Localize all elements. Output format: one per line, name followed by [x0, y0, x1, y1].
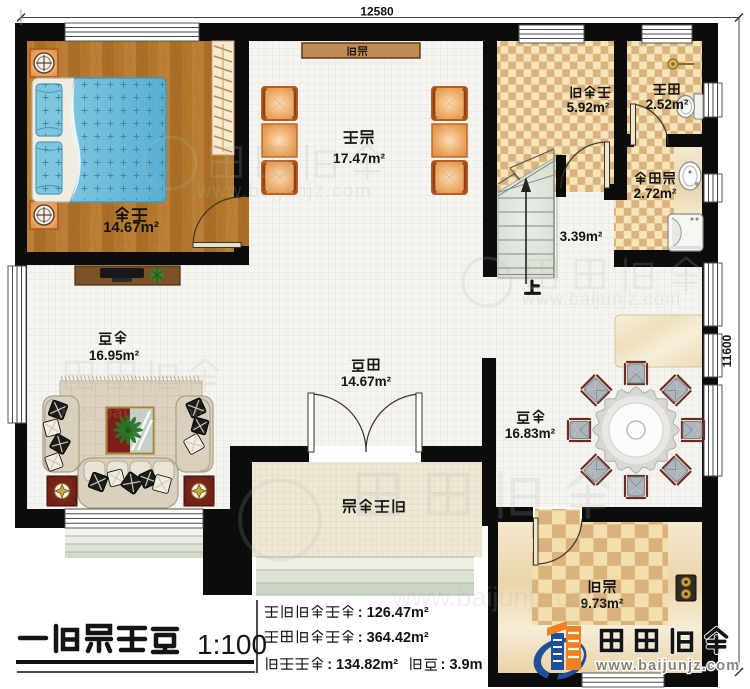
svg-text:: 3.9m: : 3.9m	[441, 657, 483, 673]
svg-text:16.83m²: 16.83m²	[505, 426, 556, 441]
svg-text:12580: 12580	[360, 5, 394, 19]
svg-text:2.72m²: 2.72m²	[634, 186, 677, 201]
svg-text:2.52m²: 2.52m²	[646, 97, 689, 112]
svg-text:www.baijunjz.com: www.baijunjz.com	[391, 582, 607, 612]
svg-text:www.baijunjz.com: www.baijunjz.com	[595, 658, 740, 674]
svg-text:3.39m²: 3.39m²	[560, 229, 603, 244]
svg-text:14.67m²: 14.67m²	[341, 374, 392, 389]
svg-text:: 364.42m²: : 364.42m²	[358, 630, 429, 646]
svg-text:www.baijunjz.com: www.baijunjz.com	[521, 289, 681, 309]
svg-text:16.95m²: 16.95m²	[89, 348, 140, 363]
svg-text:www.baijunjz.com: www.baijunjz.com	[57, 403, 209, 422]
svg-text:14.67m²: 14.67m²	[103, 219, 159, 236]
svg-text:: 134.82m²: : 134.82m²	[327, 657, 398, 673]
svg-text:5.92m²: 5.92m²	[567, 100, 610, 115]
svg-text:11600: 11600	[720, 334, 734, 367]
svg-text:www.baijunjz.com: www.baijunjz.com	[196, 181, 372, 202]
